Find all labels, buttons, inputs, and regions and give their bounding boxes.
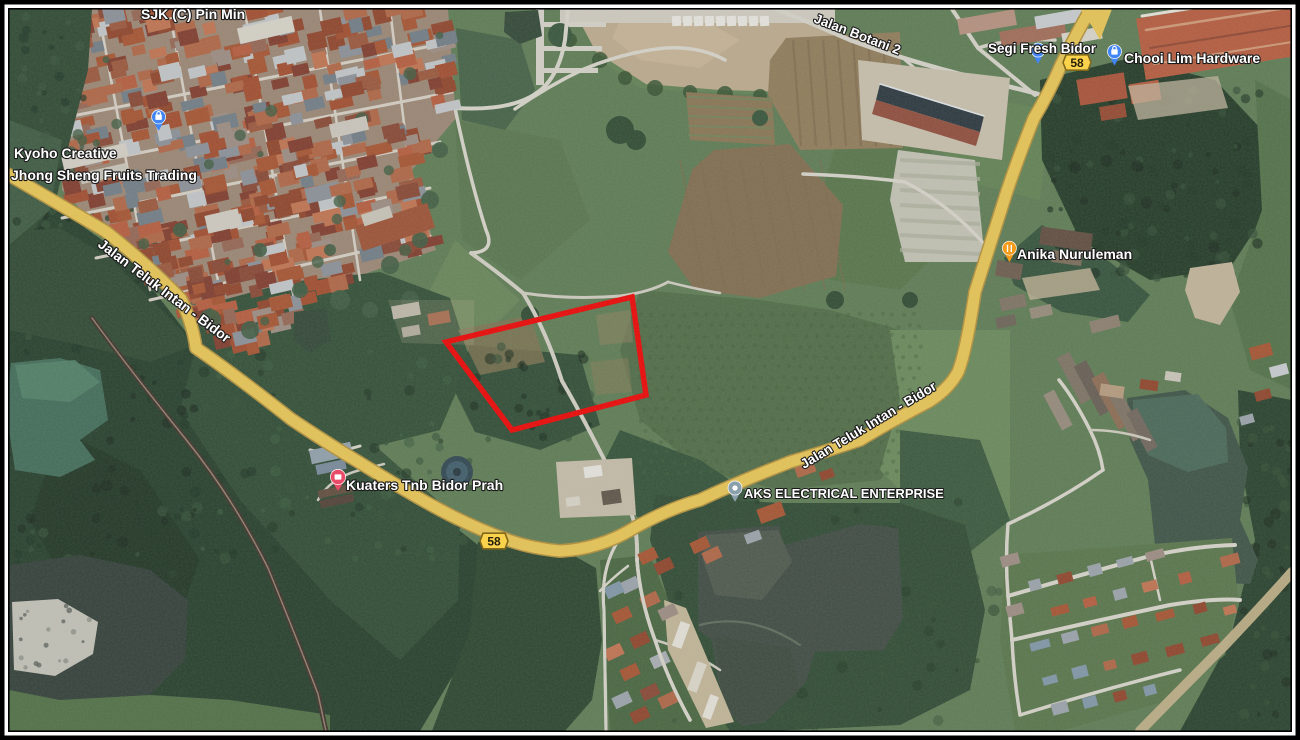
svg-text:Segi Fresh Bidor: Segi Fresh Bidor	[988, 41, 1097, 56]
svg-text:Kyoho Creative: Kyoho Creative	[14, 145, 117, 161]
svg-text:Kuaters Tnb Bidor Prah: Kuaters Tnb Bidor Prah	[346, 477, 503, 493]
svg-text:58: 58	[1070, 56, 1084, 70]
svg-text:58: 58	[487, 535, 501, 549]
svg-text:SJK (C) Pin Min: SJK (C) Pin Min	[141, 6, 245, 22]
svg-text:Anika Nuruleman: Anika Nuruleman	[1017, 246, 1132, 262]
svg-text:Chooi Lim Hardware: Chooi Lim Hardware	[1124, 50, 1260, 66]
svg-text:Jhong Sheng Fruits Trading: Jhong Sheng Fruits Trading	[11, 167, 197, 183]
svg-text:AKS ELECTRICAL ENTERPRISE: AKS ELECTRICAL ENTERPRISE	[744, 486, 944, 501]
